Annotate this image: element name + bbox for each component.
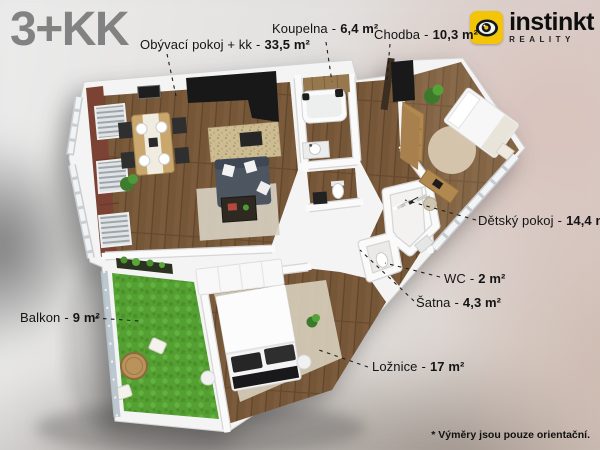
dining-chair [121,152,136,169]
laundry-machine [313,192,328,205]
room-area: 6,4 m² [340,21,378,36]
label-separator: - [424,27,428,42]
plate [136,123,148,135]
plate [158,153,170,165]
bathtub [301,89,347,124]
tub-headrest [302,93,309,100]
room-area: 14,4 m² [566,213,600,228]
apartment-slab [69,58,525,432]
dining-chair [118,122,133,139]
room-area: 2 m² [478,271,505,286]
planter-plant [132,258,140,266]
logo-subtitle: REALITY [509,35,594,44]
room-name: Obývací pokoj + kk [140,37,252,52]
room-label-kids-room: Dětský pokoj-14,4 m² [478,213,600,228]
room-label-living: Obývací pokoj + kk-33,5 m² [140,37,310,52]
planter-plant [159,262,165,268]
eye-glyph [475,16,499,40]
floorplan-page: 3+KK instinkt REALITY Obývací pokoj + kk… [0,0,600,450]
kids-plant-leaf [433,85,444,96]
bedroom-plant-leaf [312,314,320,322]
balcony-table [121,353,147,379]
coffee-table [221,196,257,222]
coffee-table-decor [228,203,237,211]
tub-inner [306,93,343,118]
table-decor [148,138,158,148]
footnote: * Výměry jsou pouze orientační. [431,429,590,441]
logo-text: instinkt REALITY [509,12,594,44]
room-label-hallway: Chodba-10,3 m² [374,27,478,42]
plant-leaf [128,174,138,184]
planter-plant [121,257,128,264]
room-name: Chodba [374,27,420,42]
logo-brand: instinkt [509,12,594,32]
room-name: Koupelna [272,21,328,36]
room-label-bathroom: Koupelna-6,4 m² [272,21,378,36]
label-separator: - [332,21,336,36]
label-separator: - [558,213,562,228]
dining-chair [172,117,187,134]
label-separator: - [256,37,260,52]
plan-title: 3+KK [10,2,128,57]
room-name: Šatna [416,295,450,310]
plate [138,155,150,167]
nightstand [201,371,215,385]
room-area: 33,5 m² [264,37,310,52]
window-blinds [99,213,131,247]
room-label-wc: WC-2 m² [444,271,505,286]
room-label-balcony: Balkon-9 m² [20,310,100,325]
room-name: WC [444,271,466,286]
room-area: 9 m² [73,310,100,325]
room-area: 10,3 m² [433,27,479,42]
wall-picture-frame [138,85,161,99]
room-label-closet: Šatna-4,3 m² [416,295,501,310]
brand-logo: instinkt REALITY [470,11,594,44]
dining-chair [174,147,189,164]
hall-wardrobe [391,60,415,102]
room-area: 17 m² [430,359,464,374]
room-area: 4,3 m² [463,295,501,310]
nightstand [297,355,311,369]
label-separator: - [470,271,474,286]
room-name: Dětský pokoj [478,213,554,228]
room-label-bedroom: Ložnice-17 m² [372,359,464,374]
plate [156,121,168,133]
label-separator: - [64,310,68,325]
tub-faucet [335,89,344,98]
cooktop [239,131,262,147]
label-separator: - [454,295,458,310]
room-name: Ložnice [372,359,418,374]
room-name: Balkon [20,310,60,325]
label-separator: - [422,359,426,374]
coffee-table-top [221,196,257,222]
planter-plant [147,260,154,267]
bathroom-sink [302,141,329,159]
